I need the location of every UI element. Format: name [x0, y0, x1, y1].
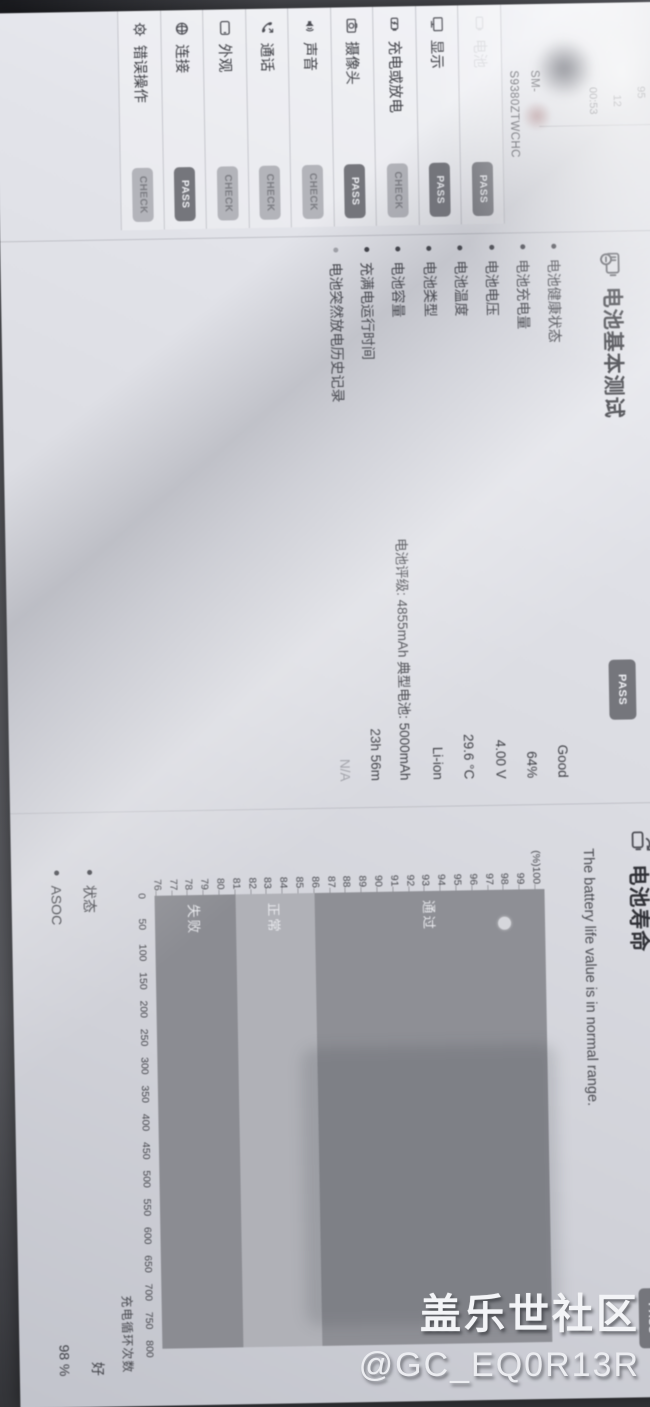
y-axis-tick-label: 93	[419, 838, 432, 886]
y-axis-tick-mark	[519, 884, 520, 889]
y-axis-tick-mark	[187, 890, 188, 895]
y-axis-tick-mark	[313, 888, 314, 893]
y-axis-tick-mark	[297, 888, 298, 893]
y-axis-tick-label: 82	[245, 841, 258, 889]
y-axis-tick-mark	[171, 890, 172, 895]
y-axis-tick-label: 98	[498, 837, 511, 885]
y-axis-tick-mark	[471, 885, 472, 890]
y-axis-tick-mark	[203, 890, 204, 895]
life-stat-value: 好	[88, 1362, 108, 1376]
y-axis-tick-label: 89	[356, 839, 369, 887]
y-axis-tick-mark	[424, 886, 425, 891]
y-axis-tick-label: 86	[308, 840, 321, 888]
life-stat-value: 98 %	[57, 1344, 74, 1376]
bullet-dot	[87, 870, 92, 875]
y-axis-tick-label: 83	[261, 841, 274, 889]
y-axis-tick-label: 78	[182, 842, 195, 890]
y-axis-tick-mark	[329, 888, 330, 893]
y-axis-tick-label: 96	[466, 837, 479, 885]
y-axis-tick-label: 90	[372, 839, 385, 887]
y-axis-tick-mark	[361, 887, 362, 892]
y-axis-tick-label: 76	[150, 843, 163, 891]
y-axis-tick-label: 84	[277, 840, 290, 888]
y-axis-tick-mark	[455, 886, 456, 891]
y-axis-tick-label: 97	[482, 837, 495, 885]
y-axis-tick-mark	[218, 890, 219, 895]
chart-zone-label: 失败	[185, 904, 206, 935]
watermark: 盖乐世社区 @GC_EQ0R13R	[359, 1280, 640, 1385]
y-axis-tick-label: 77	[166, 842, 179, 890]
report-page: 95 12 00:53 SM- S9380ZTWCHC 电池PASS显示PASS…	[0, 2, 650, 1407]
y-axis-tick-label: 91	[387, 839, 400, 887]
y-axis-tick-mark	[534, 884, 535, 889]
x-axis-tick-label: 800	[143, 1329, 156, 1369]
chart-zone-label: 正常	[265, 903, 286, 934]
y-axis-tick-label: 94	[435, 838, 448, 886]
y-axis-tick-label: 81	[229, 841, 242, 889]
chart-zone-失败: 失败	[155, 894, 244, 1348]
photo-background: 95 12 00:53 SM- S9380ZTWCHC 电池PASS显示PASS…	[0, 0, 650, 1407]
y-axis-tick-mark	[250, 889, 251, 894]
y-axis-tick-label: (%)100	[530, 836, 543, 884]
x-axis-title: 充电循环次数	[116, 1171, 137, 1373]
chart-zone-label: 通过	[420, 900, 441, 931]
life-stat-label: 状态	[80, 885, 100, 913]
battery-life-stats: 状态好ASOC98 %	[40, 870, 115, 1377]
y-axis-tick-mark	[234, 889, 235, 894]
y-axis-tick-mark	[487, 885, 488, 890]
y-axis-tick-mark	[282, 889, 283, 894]
y-axis-tick-mark	[155, 891, 156, 896]
watermark-community-name: 盖乐世社区	[359, 1280, 640, 1340]
watermark-user-id: @GC_EQ0R13R	[359, 1346, 640, 1385]
life-stat-label: ASOC	[49, 885, 66, 925]
y-axis-tick-mark	[440, 886, 441, 891]
y-axis-tick-label: 87	[324, 840, 337, 888]
y-axis-tick-label: 99	[514, 836, 527, 884]
y-axis-tick-label: 85	[293, 840, 306, 888]
y-axis-tick-label: 79	[198, 842, 211, 890]
y-axis-tick-mark	[503, 885, 504, 890]
y-axis-tick-label: 92	[403, 838, 416, 886]
y-axis-tick-mark	[392, 887, 393, 892]
y-axis-tick-label: 80	[214, 842, 227, 890]
y-axis-tick-mark	[376, 887, 377, 892]
y-axis-tick-label: 88	[340, 839, 353, 887]
y-axis-tick-mark	[266, 889, 267, 894]
y-axis-tick-mark	[408, 886, 409, 891]
y-axis-tick-mark	[345, 887, 346, 892]
bullet-dot	[54, 870, 59, 875]
y-axis-tick-label: 95	[451, 837, 464, 885]
